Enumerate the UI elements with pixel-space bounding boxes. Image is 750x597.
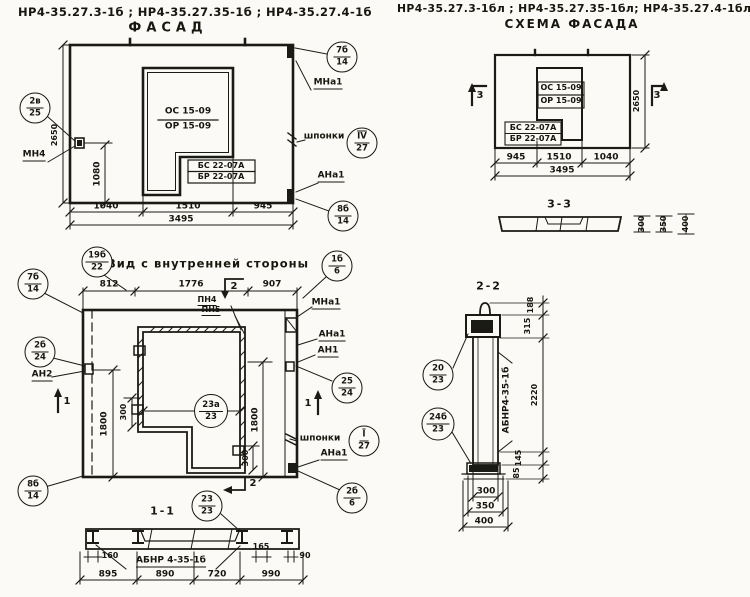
facade-ana1-label: АНа1 <box>318 172 345 183</box>
section-22-dim-400: 400 <box>475 518 494 527</box>
inner-view-title: Вид с внутренней стороны <box>107 258 309 270</box>
header-right-marks: НР4-35.27.3-1бл ; НР4-35.27.35-1бл; НР4-… <box>397 4 750 15</box>
facade-dim-945: 945 <box>254 203 273 212</box>
callout-bottom-text: 14 <box>27 492 39 502</box>
schema-dim-1040: 1040 <box>593 154 618 163</box>
callout-inner-title-left: 19б 22 <box>82 247 113 278</box>
inner-dim-812: 812 <box>100 281 119 290</box>
schema-or-label: ОР 15-09 <box>540 97 581 105</box>
callout-facade-keys: IV 27 <box>347 128 378 159</box>
callout-top-text: 25 <box>338 378 356 389</box>
callout-bottom-text: 23 <box>432 425 444 435</box>
callout-bottom-text: 24 <box>34 353 46 363</box>
section-11-dim-90: 90 <box>299 552 310 560</box>
callout-top-text: 2б <box>31 342 49 353</box>
callout-bottom-text: 23 <box>205 412 217 422</box>
inner-marker-1-right: 1 <box>305 399 312 409</box>
inner-an1-label: АН1 <box>318 347 339 358</box>
inner-ana1-top-label: АНа1 <box>319 331 346 342</box>
schema-section-marker-left: 3 <box>477 91 484 101</box>
callout-bottom-text: 23 <box>432 376 444 386</box>
section-33-dim-350: 350 <box>660 216 668 233</box>
facade-mn4-label: МН4 <box>23 151 46 162</box>
facade-title: ФАСАД <box>128 22 207 35</box>
facade-bs-label: БС 22-07А <box>198 162 245 170</box>
callout-top-text: 8б <box>334 206 352 217</box>
callout-top-text: IV <box>354 133 370 144</box>
facade-dim-1040: 1040 <box>93 203 118 212</box>
callout-inner-keys: I 27 <box>349 426 380 457</box>
inner-dim-907: 907 <box>263 281 282 290</box>
section-22-title: 2-2 <box>476 281 502 292</box>
facade-br-label: БР 22-07А <box>198 173 245 181</box>
inner-pn5-label: ПН5 <box>202 306 221 316</box>
section-11-title: 1-1 <box>150 506 176 517</box>
section-11-dim-720: 720 <box>208 571 227 580</box>
section-33-dim-300: 300 <box>638 216 646 233</box>
inner-ana1-bottom-label: АНа1 <box>321 450 348 461</box>
inner-shponki-label: шпонки <box>300 435 341 444</box>
callout-inner-below: 23 23 <box>192 491 223 522</box>
facade-dim-1510: 1510 <box>175 203 200 212</box>
schema-os-label: ОС 15-09 <box>540 84 581 92</box>
facade-dim-1080: 1080 <box>94 161 103 186</box>
facade-or-label: ОР 15-09 <box>165 123 211 132</box>
callout-inner-center: 23а 23 <box>194 394 228 428</box>
callout-inner-bottom-left: 8б 14 <box>18 476 49 507</box>
callout-bottom-text: 6 <box>334 267 340 277</box>
callout-top-text: 7б <box>333 47 351 58</box>
inner-dim-1800-left: 1800 <box>101 411 110 436</box>
callout-bottom-text: 14 <box>27 285 39 295</box>
inner-dim-1776: 1776 <box>178 281 203 290</box>
schema-dim-945: 945 <box>507 154 526 163</box>
section-22-abnr-label: АБНР4-35-1б <box>503 367 512 434</box>
callout-bottom-text: 23 <box>201 507 213 517</box>
schema-dim-2650: 2650 <box>633 90 641 112</box>
facade-shponki-label: шпонки <box>304 133 345 142</box>
inner-mna1-label: МНа1 <box>312 299 341 310</box>
callout-top-text: 23 <box>198 496 216 507</box>
section-11-dim-890: 890 <box>156 571 175 580</box>
callout-top-text: 2в <box>26 98 43 109</box>
facade-dim-2650: 2650 <box>51 124 59 146</box>
callout-top-text: 2б <box>343 488 361 499</box>
inner-dim-1800-right: 1800 <box>252 407 261 432</box>
schema-section-marker-right: 3 <box>654 91 661 101</box>
callout-top-text: 7б <box>24 274 42 285</box>
section-33-title: 3-3 <box>547 199 573 210</box>
callout-bottom-text: 6 <box>349 499 355 509</box>
schema-bs-label: БС 22-07А <box>510 124 557 132</box>
callout-bottom-text: 14 <box>336 58 348 68</box>
inner-marker-2-top: 2 <box>231 282 238 292</box>
schema-br-label: БР 22-07А <box>510 135 557 143</box>
inner-an2-label: АН2 <box>32 371 53 382</box>
callout-top-text: 23а <box>199 401 223 412</box>
section-11-dim-990: 990 <box>262 571 281 580</box>
callout-bottom-text: 27 <box>356 144 368 154</box>
schema-dim-1510: 1510 <box>546 154 571 163</box>
inner-marker-1-left: 1 <box>64 397 71 407</box>
section-11-dim-160: 160 <box>102 552 119 560</box>
callout-top-text: 8б <box>24 481 42 492</box>
section-22-dim-145: 145 <box>515 450 523 467</box>
callout-bottom-text: 25 <box>29 109 41 119</box>
inner-dim-300-left: 300 <box>120 404 128 421</box>
callout-inner-right: 25 24 <box>332 373 363 404</box>
section-11-abnr-label: АБНР 4-35-1б <box>136 557 206 568</box>
callout-inner-title-right: 1б 6 <box>322 251 353 282</box>
section-33-dim-400: 400 <box>682 216 690 233</box>
facade-os-label: ОС 15-09 <box>165 108 211 117</box>
section-22-dim-188: 188 <box>527 297 535 314</box>
callout-top-text: 19б <box>85 252 109 263</box>
callout-facade-bottom-right: 8б 14 <box>328 201 359 232</box>
callout-top-text: 24б <box>426 414 450 425</box>
inner-marker-2-bottom: 2 <box>250 479 257 489</box>
callout-top-text: 20 <box>429 365 447 376</box>
section-22-dim-315: 315 <box>524 318 532 335</box>
blueprint-canvas: НР4-35.27.3-1б ; НР4-35.27.35-1б ; НР4-3… <box>0 0 750 597</box>
section-22-dim-2220: 2220 <box>531 384 539 406</box>
callout-facade-top-right: 7б 14 <box>327 42 358 73</box>
callout-facade-left: 2в 25 <box>20 93 51 124</box>
callout-top-text: I <box>359 431 368 442</box>
schema-dim-3495: 3495 <box>549 167 574 176</box>
callout-inner-bottom-right: 2б 6 <box>337 483 368 514</box>
header-left-marks: НР4-35.27.3-1б ; НР4-35.27.35-1б ; НР4-3… <box>18 7 372 19</box>
section-22-dim-350: 350 <box>476 503 495 512</box>
callout-inner-left: 2б 24 <box>25 337 56 368</box>
section-11-dim-895: 895 <box>99 571 118 580</box>
section-22-dim-85: 85 <box>513 467 521 478</box>
callout-top-text: 1б <box>328 256 346 267</box>
callout-bottom-text: 22 <box>91 263 103 273</box>
schema-title: СХЕМА ФАСАДА <box>505 18 640 30</box>
inner-dim-300-right: 300 <box>242 450 250 467</box>
callout-sec22-top: 20 23 <box>423 360 454 391</box>
callout-bottom-text: 14 <box>337 217 349 227</box>
callout-inner-top-left: 7б 14 <box>18 269 49 300</box>
callout-sec22-bottom: 24б 23 <box>422 408 455 441</box>
section-11-dim-165: 165 <box>253 543 270 551</box>
facade-dim-3495: 3495 <box>168 216 193 225</box>
section-22-dim-300: 300 <box>477 488 496 497</box>
callout-bottom-text: 27 <box>358 442 370 452</box>
callout-bottom-text: 24 <box>341 389 353 399</box>
facade-mna1-label: МНа1 <box>314 79 343 90</box>
